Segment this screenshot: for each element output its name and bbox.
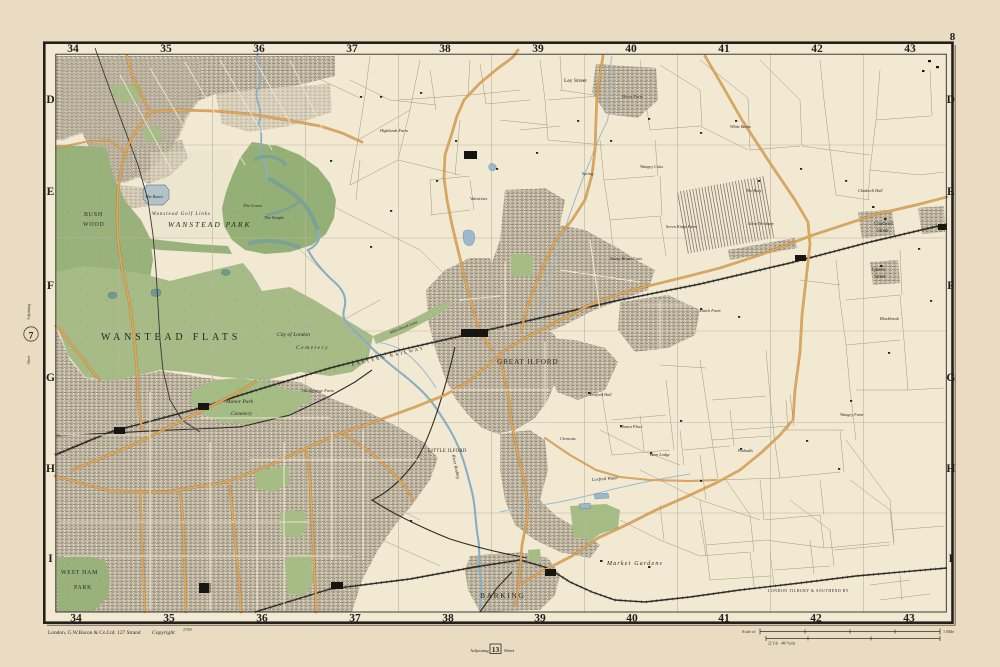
svg-text:Cemetery: Cemetery <box>231 411 253 417</box>
svg-text:Adjoining: Adjoining <box>470 648 489 653</box>
svg-text:43: 43 <box>903 613 915 625</box>
svg-text:WEST HAM: WEST HAM <box>61 570 98 576</box>
svg-text:37: 37 <box>349 613 361 625</box>
svg-text:G: G <box>46 372 55 384</box>
svg-text:G: G <box>946 372 955 384</box>
svg-text:D: D <box>46 94 54 106</box>
svg-text:Horns Farm: Horns Farm <box>621 94 643 99</box>
svg-text:35: 35 <box>160 43 172 55</box>
svg-text:Seven Kings Farm: Seven Kings Farm <box>666 224 697 229</box>
svg-text:36: 36 <box>256 613 268 625</box>
svg-text:34: 34 <box>67 43 79 55</box>
svg-text:Wanstead Golf Links: Wanstead Golf Links <box>152 212 211 217</box>
svg-text:Barn Lodge: Barn Lodge <box>650 452 670 457</box>
svg-text:The Basin: The Basin <box>145 194 163 199</box>
svg-text:PARK: PARK <box>74 585 92 591</box>
svg-text:Blackbrush: Blackbrush <box>880 316 899 321</box>
svg-text:37: 37 <box>346 43 358 55</box>
svg-text:Valentines: Valentines <box>470 196 488 201</box>
svg-text:13: 13 <box>492 645 500 654</box>
svg-text:BARKING: BARKING <box>480 591 525 600</box>
svg-text:Sheet: Sheet <box>26 355 31 365</box>
svg-text:LITTLE ILFORD: LITTLE ILFORD <box>428 449 467 454</box>
svg-text:22 Yds 440 Yards: 22 Yds 440 Yards <box>768 642 796 646</box>
svg-text:Queen: Queen <box>872 268 886 273</box>
svg-text:41: 41 <box>718 613 730 625</box>
svg-text:27500: 27500 <box>183 628 192 632</box>
svg-text:1 Mile: 1 Mile <box>943 629 954 634</box>
svg-text:41: 41 <box>718 43 730 55</box>
svg-text:I: I <box>949 553 954 565</box>
svg-text:35: 35 <box>163 613 175 625</box>
svg-text:GREAT ILFORD: GREAT ILFORD <box>497 358 559 366</box>
svg-text:Street: Street <box>874 275 886 280</box>
svg-text:7: 7 <box>29 332 34 342</box>
svg-text:Manor Park: Manor Park <box>225 399 254 405</box>
svg-text:34: 34 <box>70 613 82 625</box>
svg-text:Copyright: Copyright <box>152 630 175 636</box>
svg-text:40: 40 <box>626 613 638 625</box>
svg-text:42: 42 <box>810 613 822 625</box>
svg-text:The Grove: The Grove <box>243 203 262 208</box>
svg-text:Highlands Farm: Highlands Farm <box>379 128 408 133</box>
svg-text:Padnalls: Padnalls <box>737 448 753 453</box>
svg-text:E: E <box>947 186 955 198</box>
svg-text:Wangey Cotts: Wangey Cotts <box>640 164 663 169</box>
svg-text:Chadwell: Chadwell <box>874 222 894 227</box>
svg-text:Cemetery: Cemetery <box>296 345 329 351</box>
svg-text:Wangey Farm: Wangey Farm <box>840 412 863 417</box>
svg-text:43: 43 <box>904 43 916 55</box>
svg-text:The Bury: The Bury <box>746 188 762 193</box>
svg-text:36: 36 <box>253 43 265 55</box>
svg-text:BUSH: BUSH <box>84 212 103 218</box>
svg-text:WANSTEAD FLATS: WANSTEAD FLATS <box>101 332 241 343</box>
svg-text:39: 39 <box>532 43 544 55</box>
svg-text:Hatch Farm: Hatch Farm <box>699 308 721 313</box>
svg-text:8: 8 <box>950 31 956 43</box>
svg-text:38: 38 <box>442 613 454 625</box>
svg-text:WANSTEAD PARK: WANSTEAD PARK <box>168 220 251 229</box>
svg-text:City of London: City of London <box>277 331 310 338</box>
svg-text:Ley Street: Ley Street <box>564 78 587 84</box>
svg-text:White Barns: White Barns <box>730 124 751 129</box>
svg-text:42: 42 <box>811 43 823 55</box>
svg-text:Adjoining: Adjoining <box>26 304 31 320</box>
svg-text:I: I <box>48 553 53 565</box>
svg-text:Spring: Spring <box>582 171 593 176</box>
svg-text:Stamp House Cotts: Stamp House Cotts <box>610 256 642 261</box>
svg-text:Loxford Hall: Loxford Hall <box>589 392 612 397</box>
svg-text:LONDON TILBURY & SOUTHEND RY: LONDON TILBURY & SOUTHEND RY <box>768 589 849 593</box>
svg-text:40: 40 <box>625 43 637 55</box>
svg-text:38: 38 <box>439 43 451 55</box>
svg-text:Scale of: Scale of <box>742 629 756 634</box>
svg-text:Street: Street <box>877 229 889 234</box>
svg-text:London, G.W.Bacon & Co.Ltd. 12: London, G.W.Bacon & Co.Ltd. 127 Strand <box>48 630 141 636</box>
svg-text:Sheet: Sheet <box>504 648 515 653</box>
svg-text:Clements: Clements <box>560 436 576 441</box>
svg-text:D: D <box>947 94 955 106</box>
svg-text:Woodgrange Farm: Woodgrange Farm <box>302 388 334 393</box>
svg-text:39: 39 <box>534 613 546 625</box>
svg-text:F: F <box>47 280 54 292</box>
svg-text:WOOD: WOOD <box>83 222 105 228</box>
svg-text:E: E <box>47 186 55 198</box>
svg-text:The Temple: The Temple <box>264 215 284 220</box>
svg-text:H: H <box>946 463 955 475</box>
svg-text:Great Newbury: Great Newbury <box>748 221 774 226</box>
svg-text:Chadwell Hall: Chadwell Hall <box>858 188 883 193</box>
svg-text:H: H <box>46 463 55 475</box>
svg-text:Blanca Place: Blanca Place <box>620 424 643 429</box>
svg-text:F: F <box>947 280 954 292</box>
svg-text:Market Gardens: Market Gardens <box>606 561 663 567</box>
